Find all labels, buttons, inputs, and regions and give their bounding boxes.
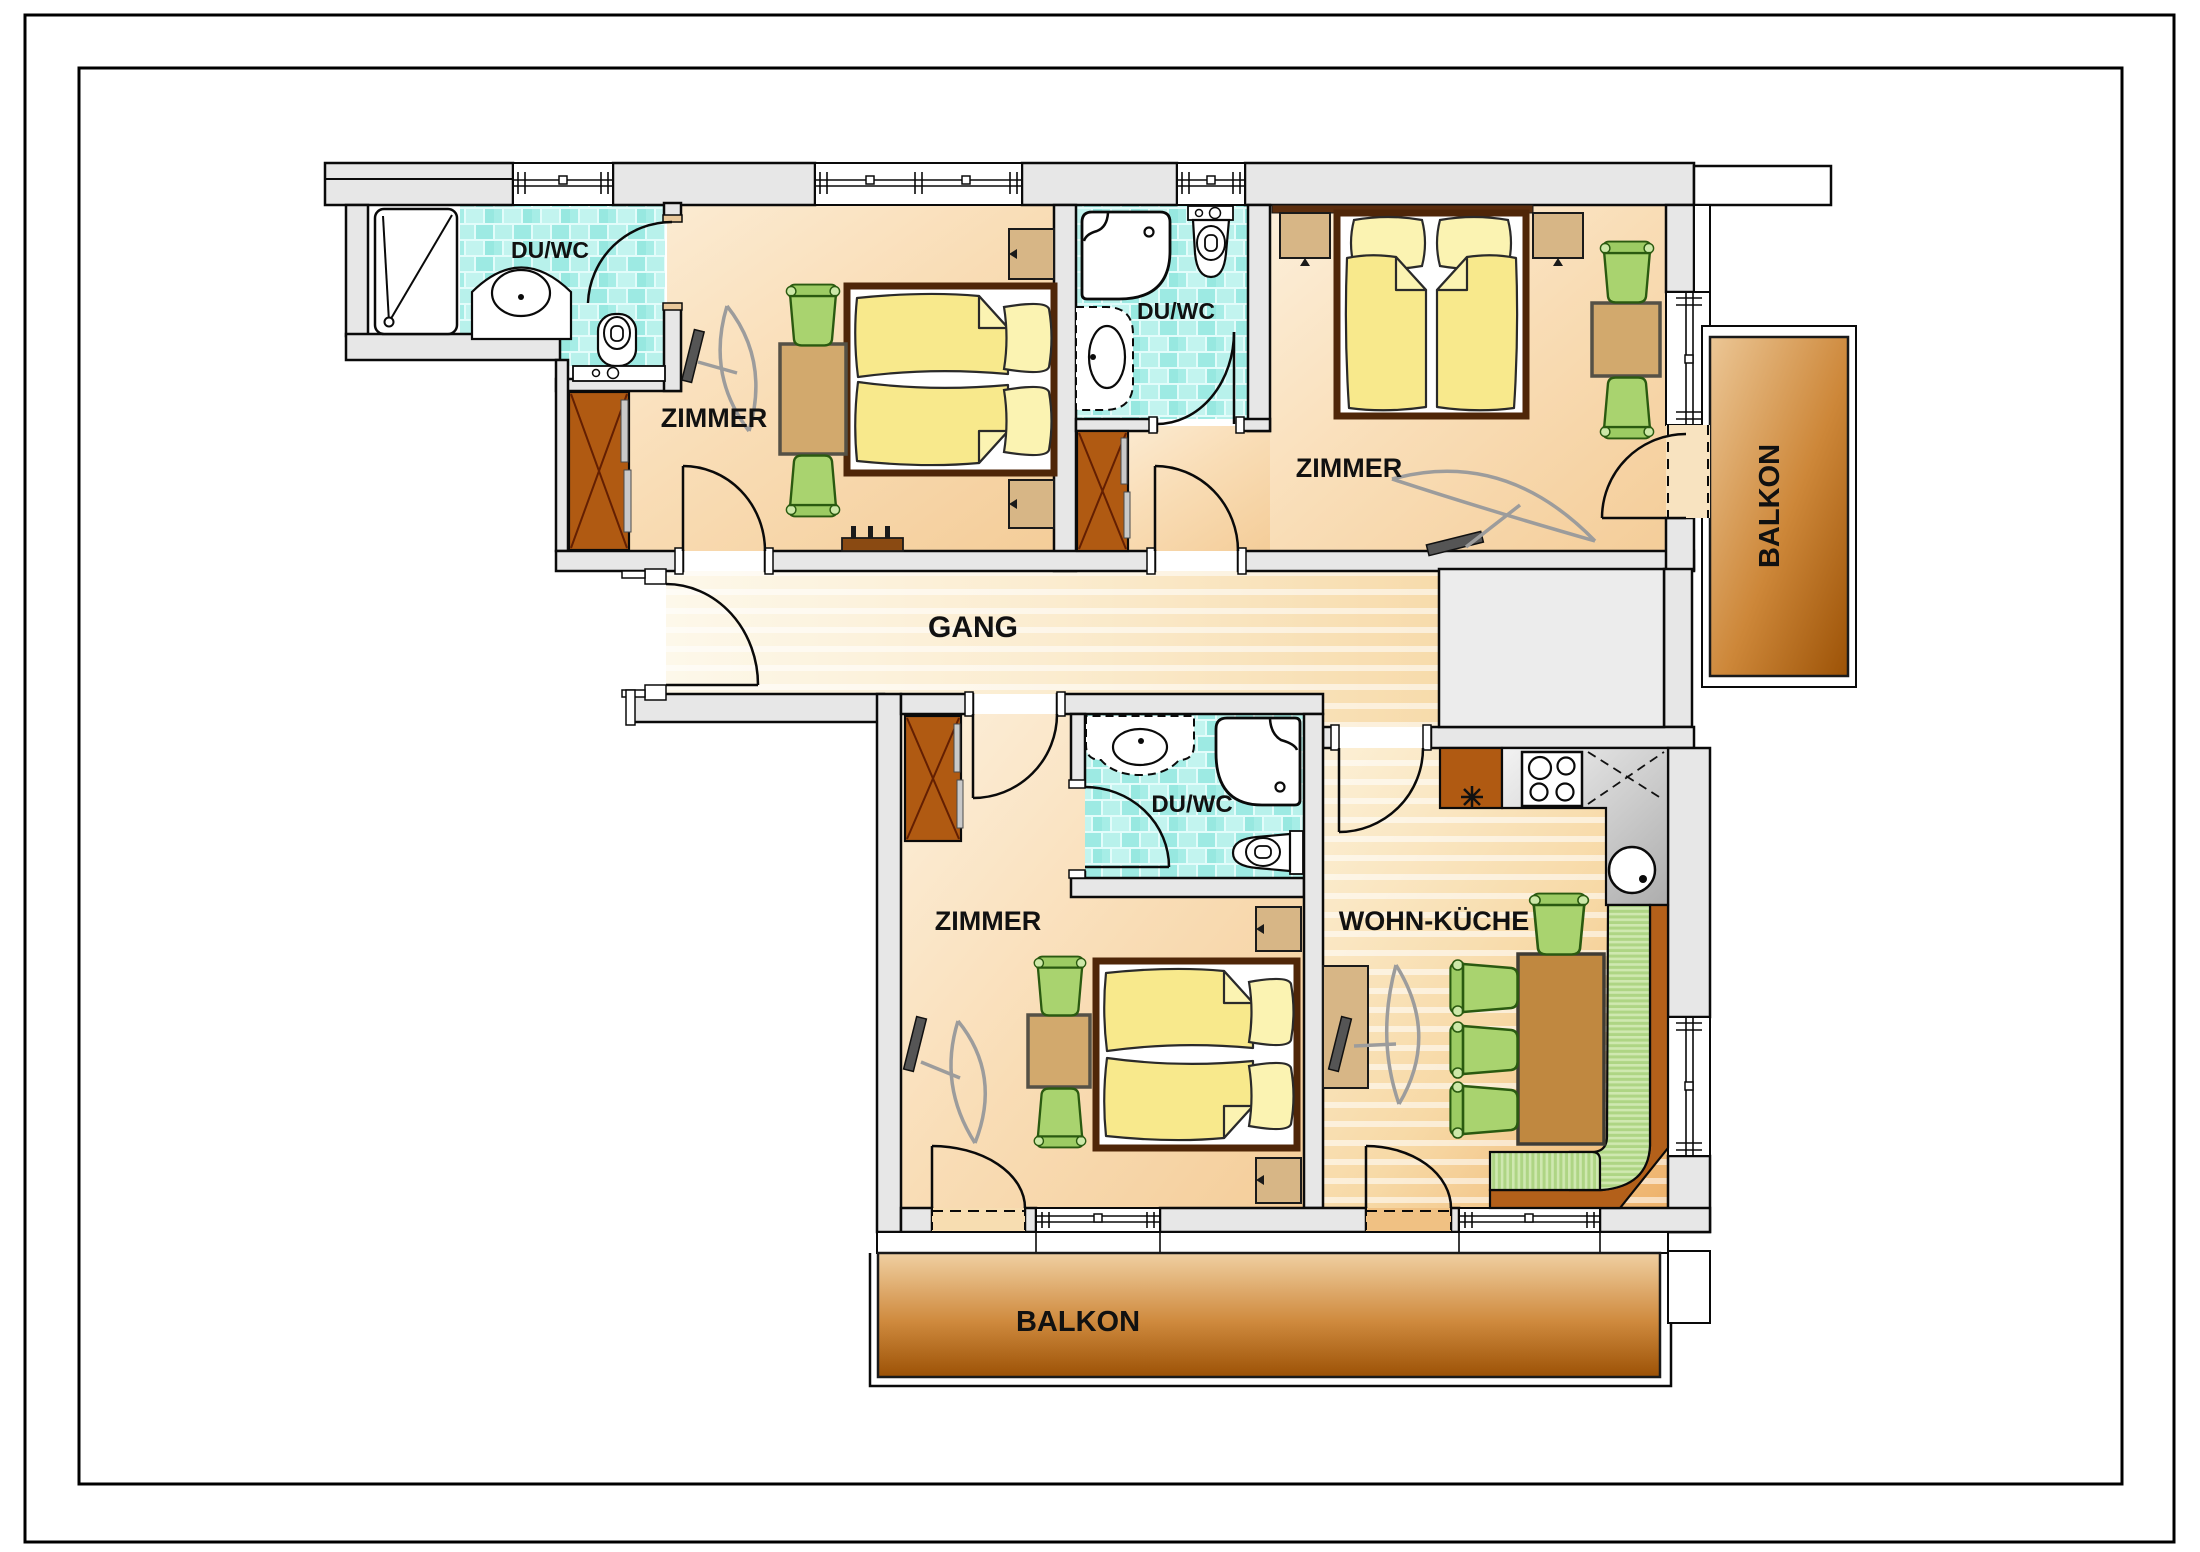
svg-text:DU/WC: DU/WC — [1137, 298, 1215, 324]
svg-text:ZIMMER: ZIMMER — [1296, 453, 1402, 483]
svg-text:ZIMMER: ZIMMER — [661, 403, 767, 433]
svg-text:DU/WC: DU/WC — [1151, 791, 1232, 818]
svg-text:WOHN-KÜCHE: WOHN-KÜCHE — [1339, 906, 1529, 936]
svg-text:GANG: GANG — [928, 611, 1018, 644]
svg-text:BALKON: BALKON — [1754, 444, 1786, 568]
svg-text:ZIMMER: ZIMMER — [935, 906, 1041, 936]
svg-text:BALKON: BALKON — [1016, 1306, 1140, 1338]
svg-text:DU/WC: DU/WC — [511, 237, 589, 263]
